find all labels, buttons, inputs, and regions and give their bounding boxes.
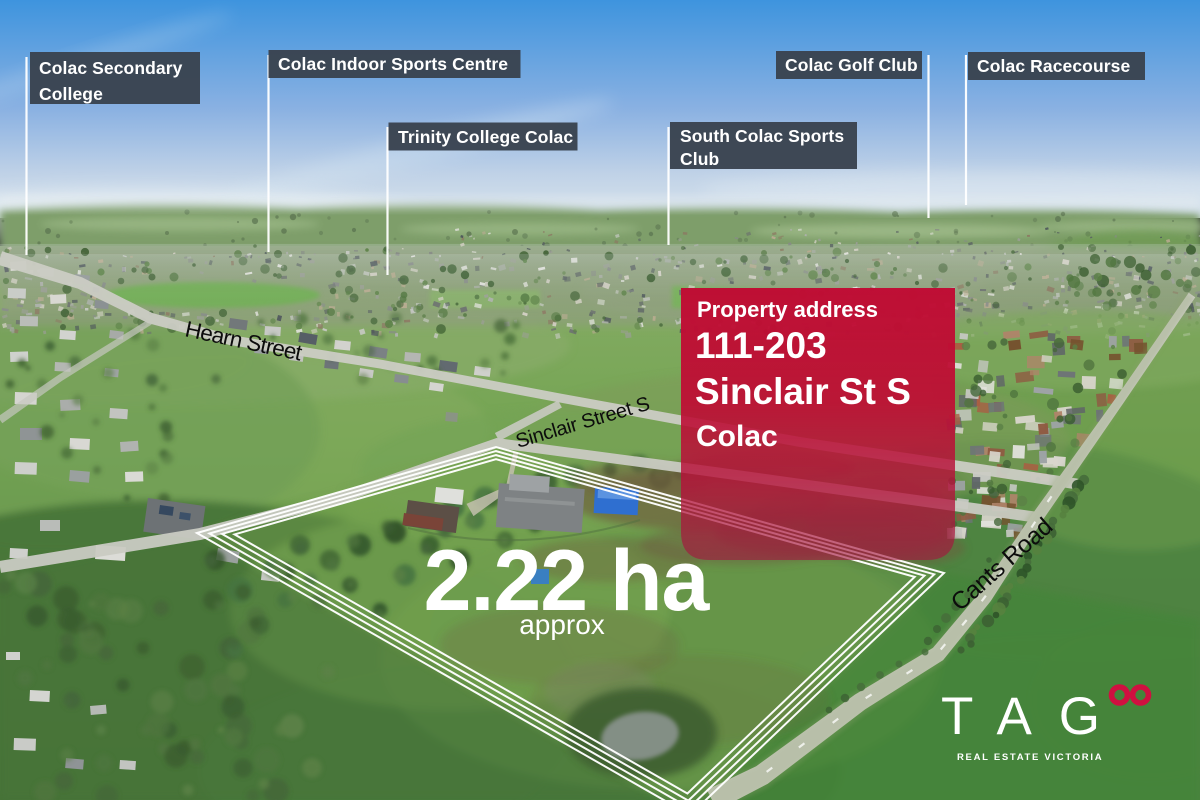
svg-text:Colac Golf Club: Colac Golf Club [785,55,918,75]
svg-text:Sinclair St S: Sinclair St S [695,371,911,412]
svg-text:Trinity College Colac: Trinity College Colac [398,127,573,147]
svg-text:Club: Club [680,149,719,169]
svg-text:Colac Secondary: Colac Secondary [39,58,183,78]
svg-text:approx: approx [519,609,605,640]
svg-text:REAL ESTATE VICTORIA: REAL ESTATE VICTORIA [957,752,1103,763]
svg-text:Colac: Colac [696,420,778,453]
svg-text:South Colac Sports: South Colac Sports [680,126,844,146]
svg-text:Property address: Property address [697,297,878,322]
svg-text:Colac Racecourse: Colac Racecourse [977,56,1131,76]
svg-text:TAG: TAG [941,687,1127,746]
svg-text:Colac Indoor Sports Centre: Colac Indoor Sports Centre [278,54,508,74]
svg-text:College: College [39,84,103,104]
svg-text:111-203: 111-203 [695,325,827,366]
